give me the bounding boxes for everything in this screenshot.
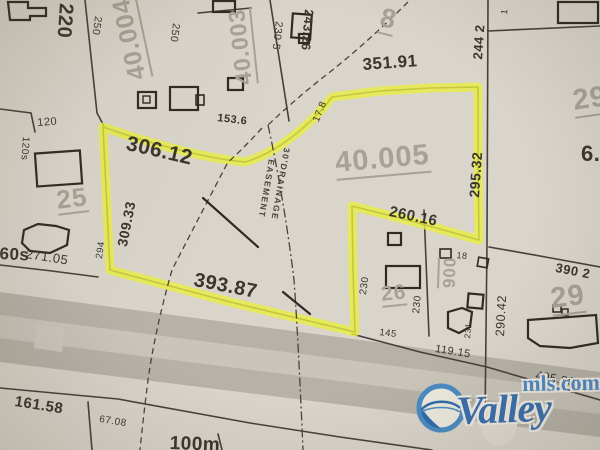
- parcel-id-25: 25: [55, 183, 89, 216]
- road-patch: [34, 324, 64, 352]
- building-icon: [138, 92, 156, 108]
- dim-294: 294: [95, 241, 107, 260]
- building-icon: [467, 293, 483, 308]
- building-icon: [528, 315, 598, 348]
- dim-230-b: 230: [412, 295, 424, 314]
- plat-map-image: 40.004 40.003 8 40.005 25 26 006 29 29 2…: [0, 0, 600, 450]
- dim-145: 145: [379, 328, 397, 340]
- dim-250-a: 250: [90, 16, 103, 36]
- dim-120s: 120s: [18, 136, 30, 160]
- building-icon: [558, 2, 598, 23]
- dim-1: 1: [500, 9, 509, 15]
- building-icon: [143, 96, 150, 103]
- dim-60s: 60s: [0, 245, 30, 264]
- parcel-id-29-bottom: 29: [549, 281, 587, 317]
- dim-243-26: 243.26: [299, 9, 315, 51]
- dim-250-b: 250: [168, 23, 181, 43]
- plat-map-drawing: [0, 0, 600, 450]
- parcel-id-006: 006: [437, 257, 458, 289]
- building-icon: [35, 150, 82, 186]
- building-icon: [8, 2, 46, 20]
- building-icon: [388, 233, 401, 245]
- dim-231: 231: [463, 322, 473, 338]
- building-footprints: [8, 1, 598, 348]
- parcel-id-26: 26: [380, 281, 408, 308]
- dim-230-5: 230 5: [270, 21, 284, 51]
- dim-351-91: 351.91: [362, 52, 418, 73]
- dim-120: 120: [37, 117, 58, 129]
- valleymls-logo-domain: mls.com: [522, 370, 600, 397]
- parcel-id-29-top: 29: [571, 82, 600, 118]
- dim-290-42: 290.42: [494, 295, 509, 337]
- scale-label: 100m: [169, 434, 220, 450]
- dim-220: 220: [54, 3, 76, 39]
- dim-18: 18: [456, 251, 468, 261]
- dim-244-2: 244 2: [471, 24, 486, 60]
- building-icon: [170, 87, 198, 110]
- dim-295-32: 295.32: [467, 151, 484, 198]
- dim-6: 6.: [581, 143, 600, 165]
